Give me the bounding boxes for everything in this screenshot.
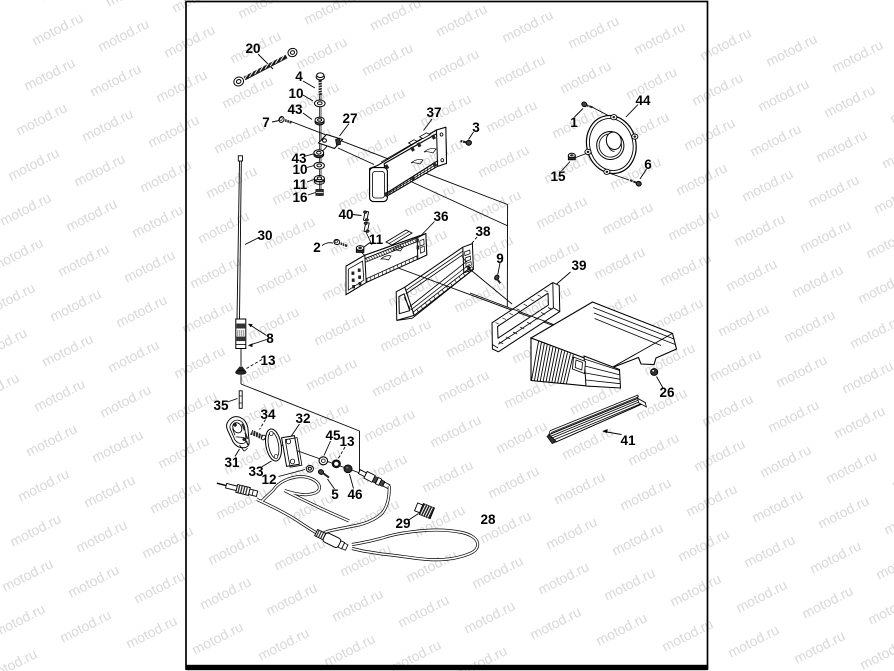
svg-text:1: 1 — [570, 115, 578, 130]
svg-text:2: 2 — [313, 240, 321, 255]
svg-text:41: 41 — [620, 433, 636, 448]
svg-text:39: 39 — [571, 258, 586, 273]
svg-text:20: 20 — [245, 41, 260, 56]
svg-text:44: 44 — [635, 93, 651, 108]
svg-text:10: 10 — [292, 162, 307, 177]
svg-text:8: 8 — [266, 331, 274, 346]
svg-text:4: 4 — [295, 69, 303, 84]
svg-text:15: 15 — [550, 169, 566, 184]
svg-text:11: 11 — [369, 232, 384, 247]
svg-text:27: 27 — [342, 111, 357, 126]
svg-text:26: 26 — [659, 385, 675, 400]
svg-text:28: 28 — [480, 512, 496, 527]
svg-text:29: 29 — [395, 516, 410, 531]
svg-text:35: 35 — [213, 398, 229, 413]
svg-text:3: 3 — [472, 120, 480, 135]
svg-text:7: 7 — [262, 115, 270, 130]
svg-text:38: 38 — [475, 224, 491, 239]
svg-text:30: 30 — [257, 228, 272, 243]
svg-text:46: 46 — [347, 487, 363, 502]
svg-text:12: 12 — [261, 472, 276, 487]
svg-text:36: 36 — [433, 209, 449, 224]
svg-text:5: 5 — [331, 487, 339, 502]
svg-text:43: 43 — [287, 102, 303, 117]
svg-text:40: 40 — [338, 207, 353, 222]
svg-text:13: 13 — [339, 434, 355, 449]
svg-text:31: 31 — [224, 455, 240, 470]
svg-text:13: 13 — [260, 353, 276, 368]
svg-text:9: 9 — [496, 251, 504, 266]
svg-text:34: 34 — [260, 407, 276, 422]
svg-text:10: 10 — [288, 86, 303, 101]
svg-text:32: 32 — [295, 411, 310, 426]
svg-text:37: 37 — [426, 105, 441, 120]
svg-text:16: 16 — [292, 190, 308, 205]
svg-text:6: 6 — [644, 157, 652, 172]
